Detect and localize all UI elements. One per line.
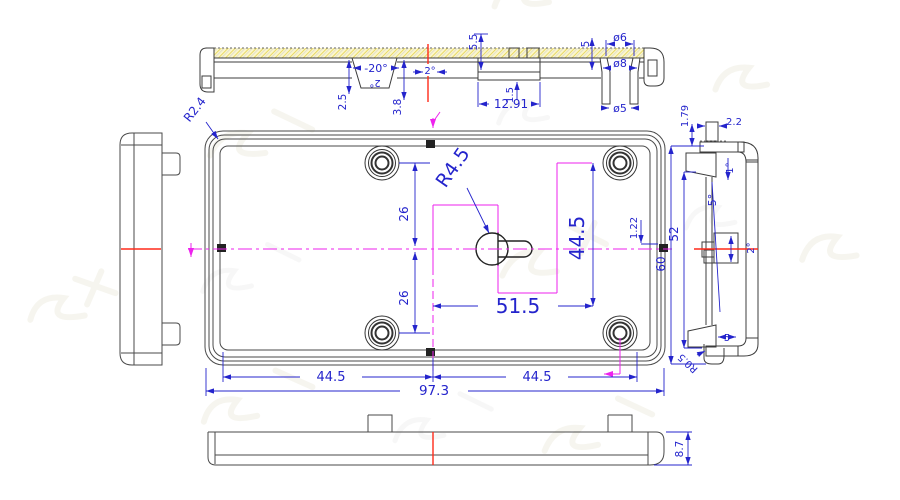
- dim-12-91-label: 12.91: [494, 97, 528, 111]
- dim-angle-1-label: 1°: [725, 162, 736, 173]
- right-section-view: 1.79 2.2 1° 5° 2° 52 60 5 R0.5: [654, 105, 758, 375]
- dim-r0-5-label: R0.5: [676, 351, 700, 375]
- boss-top-right: [603, 146, 637, 180]
- dim-dia8-label: ø8: [613, 57, 627, 70]
- plan-bosses: [365, 146, 637, 350]
- left-view-bottom-tab: [162, 323, 180, 345]
- drawing-svg: -20° 2° 2.5 3.8 2° 5.5 1.5 12.91 5: [0, 0, 900, 500]
- left-view-top-tab: [162, 153, 180, 175]
- right-view-boss-section: [714, 233, 738, 263]
- dim-1-22-label: 1.22: [629, 217, 640, 239]
- right-view-bottom-flange: [688, 325, 716, 347]
- dim-5-flange-label: 5: [724, 333, 730, 344]
- dim-8-7-label: 8.7: [674, 441, 686, 458]
- bottom-view-geometry: [208, 415, 664, 465]
- top-section-view: -20° 2° 2.5 3.8 2° 5.5 1.5 12.91 5: [200, 31, 664, 115]
- dim-1-79-label: 1.79: [680, 105, 691, 127]
- dim-angle-2-pocket-label: 2°: [369, 77, 380, 88]
- dim-dia5-label: ø5: [613, 102, 627, 115]
- bottom-view-left-tab: [368, 415, 392, 432]
- dim-5-label: 5: [580, 41, 592, 48]
- dim-5-5-label: 5.5: [468, 34, 480, 51]
- top-section-dimensions: -20° 2° 2.5 3.8 2° 5.5 1.5 12.91 5: [337, 31, 637, 115]
- bottom-view-dimensions: 8.7: [654, 432, 692, 465]
- dim-angle-5-label: 5°: [706, 194, 719, 207]
- dim-3-8-label: 3.8: [392, 99, 404, 116]
- right-view-top-tab: [706, 122, 718, 141]
- cad-drawing-canvas: -20° 2° 2.5 3.8 2° 5.5 1.5 12.91 5: [0, 0, 900, 500]
- dim-dia6-label: ø6: [613, 31, 627, 44]
- dim-angle-2-section-label: 2°: [424, 66, 435, 77]
- dim-44-5-vertical-label: 44.5: [565, 216, 589, 261]
- dim-44-5-bottom-right-label: 44.5: [523, 370, 552, 385]
- left-side-view: [120, 133, 180, 365]
- boss-top-left: [365, 146, 399, 180]
- dim-r2-4-label: R2.4: [181, 94, 209, 124]
- dim-angle-neg20-label: -20°: [364, 62, 387, 75]
- boss-bottom-left: [365, 316, 399, 350]
- dim-angle-2-right-label: 2°: [746, 242, 757, 253]
- plan-dimensions: 26 26 44.5 51.5 1.22 44.5 44.5 97.3 R2.4: [181, 94, 664, 399]
- bottom-view-right-tab: [608, 415, 632, 432]
- dim-97-3-label: 97.3: [419, 383, 449, 399]
- dim-2-5-label: 2.5: [337, 94, 349, 111]
- bottom-view: 8.7: [208, 415, 692, 465]
- dim-51-5-label: 51.5: [496, 294, 541, 318]
- dim-2-2-label: 2.2: [726, 117, 742, 128]
- dim-r4-5-label: R4.5: [432, 143, 475, 191]
- dim-60-label: 60: [654, 256, 668, 271]
- right-view-top-flange: [686, 153, 716, 177]
- dim-26-top-label: 26: [397, 206, 411, 221]
- dim-26-bottom-label: 26: [397, 290, 411, 305]
- front-plan-view: 26 26 44.5 51.5 1.22 44.5 44.5 97.3 R2.4: [181, 94, 672, 399]
- dim-52-label: 52: [667, 226, 681, 241]
- dim-44-5-bottom-left-label: 44.5: [317, 370, 346, 385]
